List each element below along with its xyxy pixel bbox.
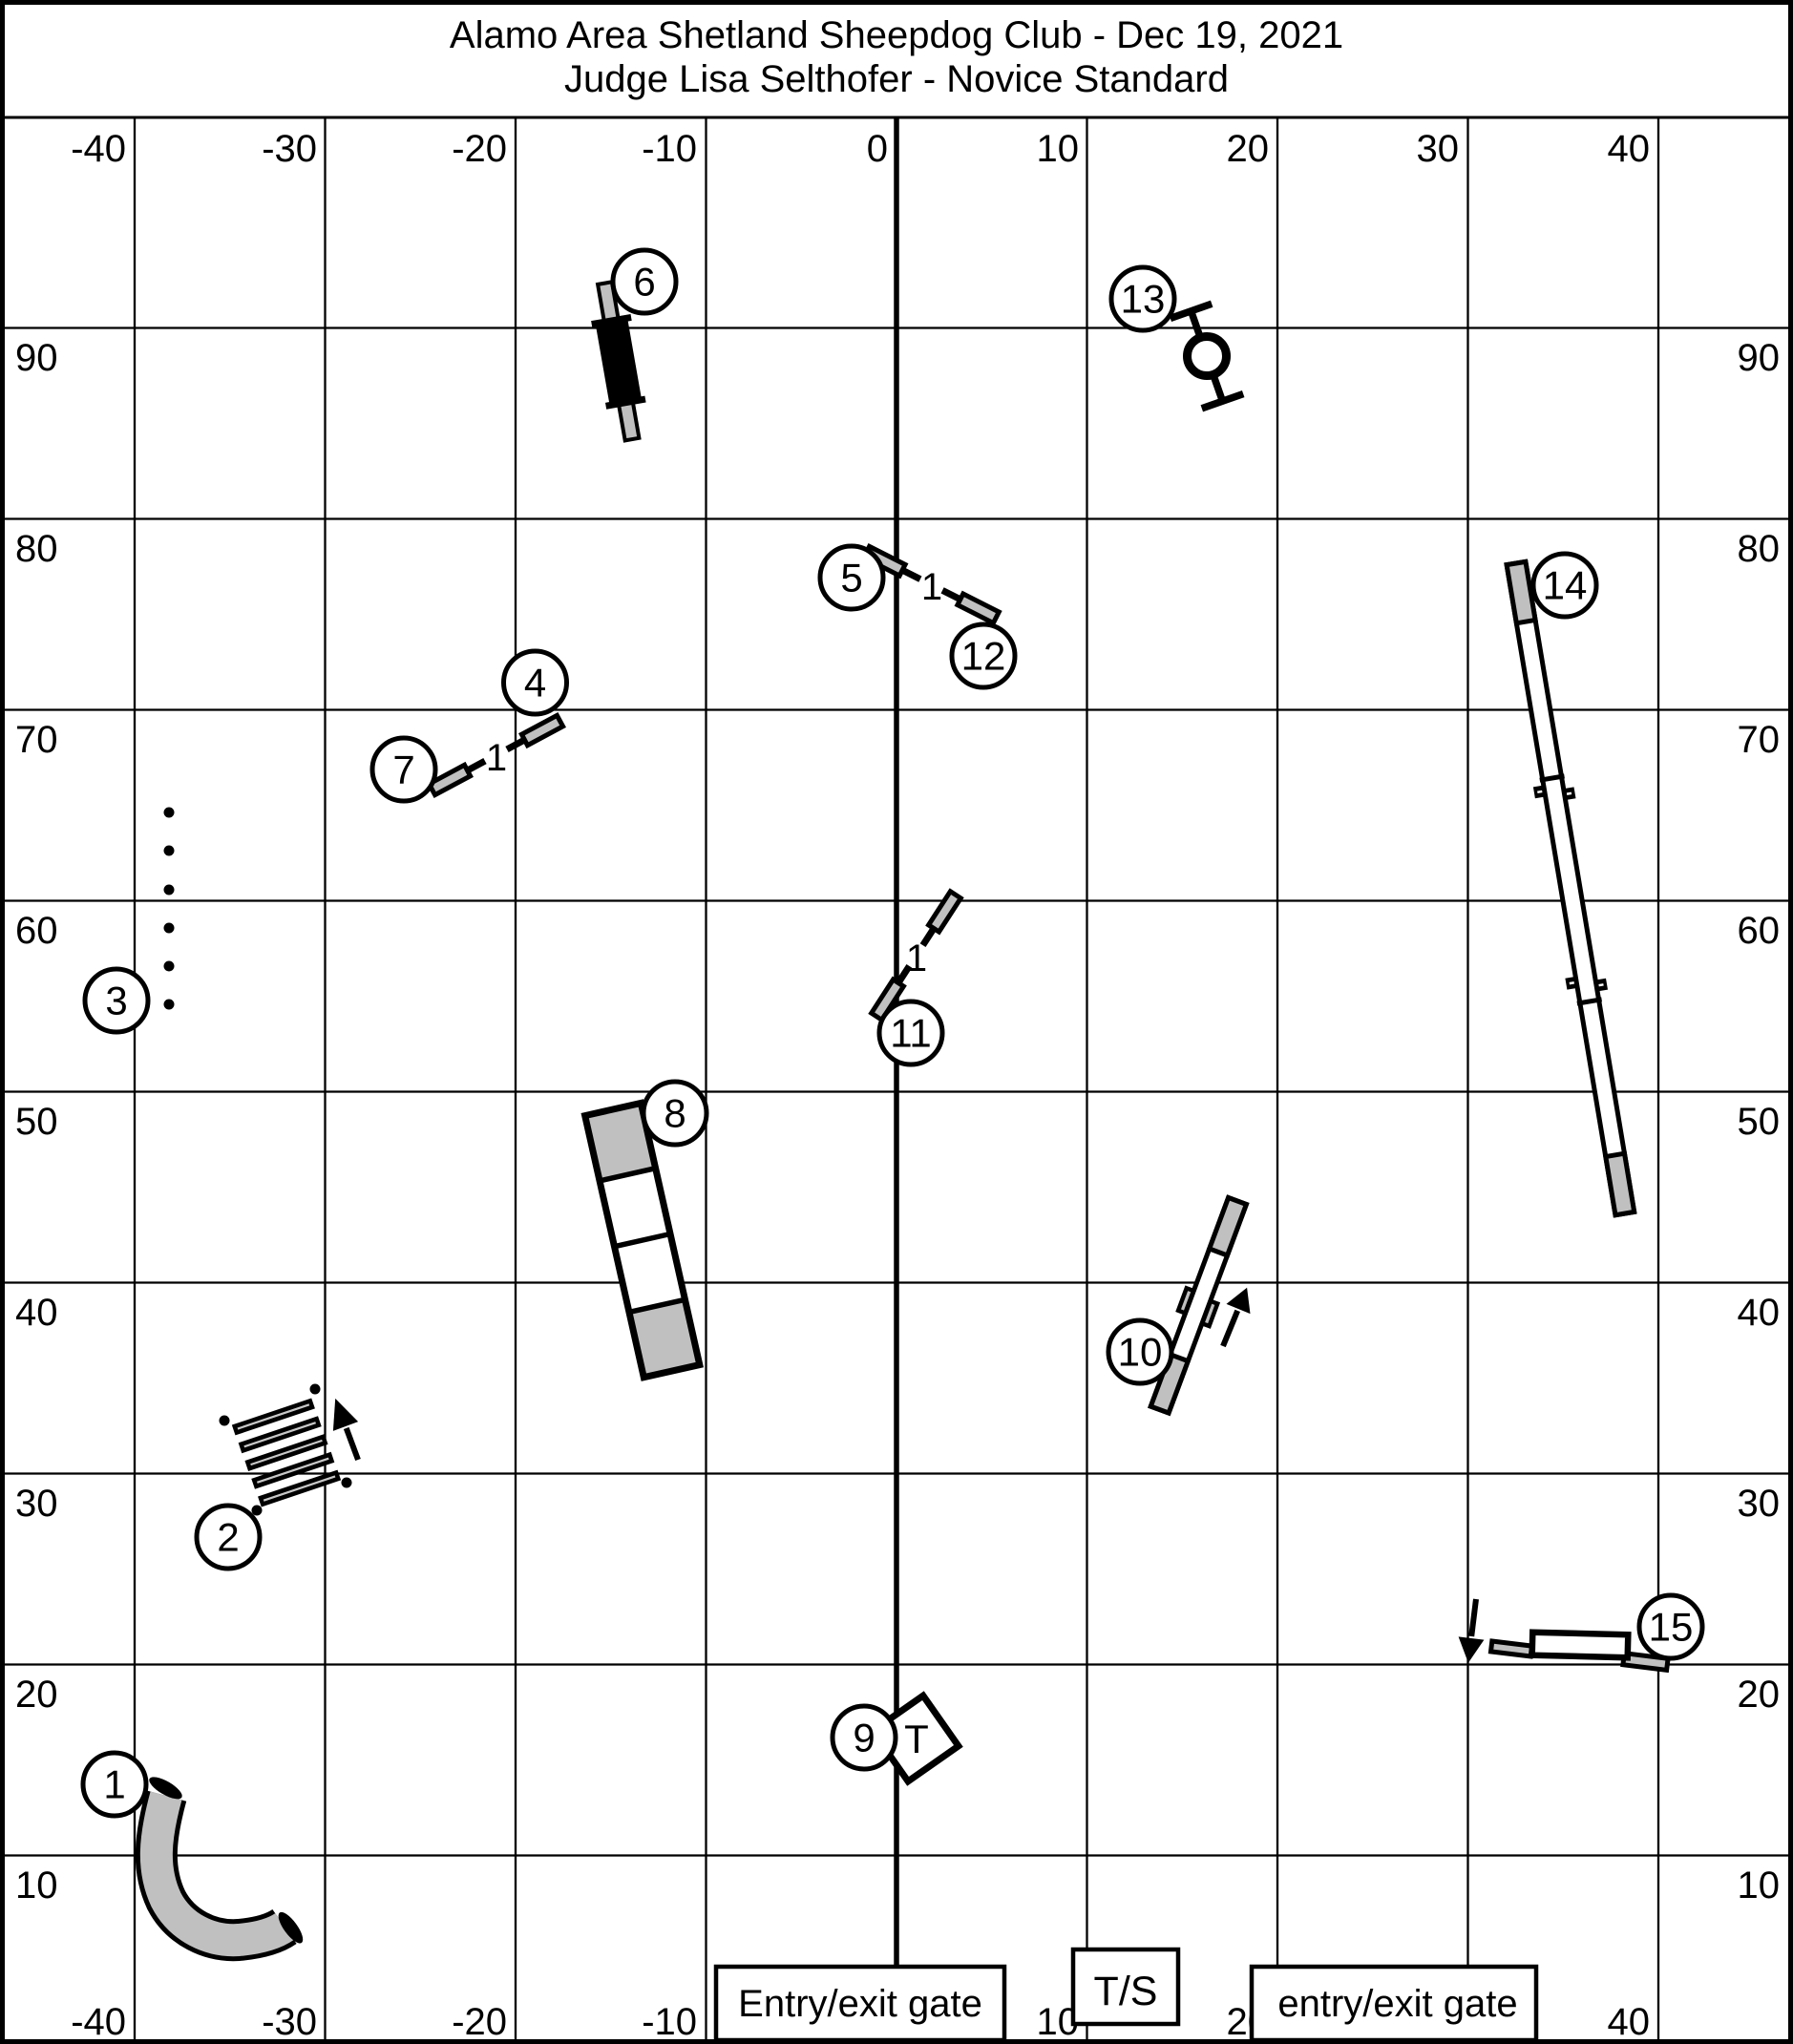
svg-text:90: 90	[15, 337, 58, 379]
svg-text:70: 70	[1738, 719, 1781, 761]
svg-text:9: 9	[853, 1716, 875, 1760]
svg-text:7: 7	[392, 748, 414, 792]
svg-text:T/S: T/S	[1094, 1969, 1158, 2014]
svg-text:-40: -40	[71, 2001, 126, 2043]
svg-text:40: 40	[15, 1292, 58, 1334]
svg-text:entry/exit gate: entry/exit gate	[1277, 1983, 1517, 2025]
svg-text:30: 30	[1417, 128, 1460, 170]
svg-text:40: 40	[1608, 128, 1651, 170]
svg-text:50: 50	[15, 1101, 58, 1143]
svg-text:15: 15	[1649, 1605, 1694, 1650]
svg-text:0: 0	[867, 128, 888, 170]
svg-text:5: 5	[840, 556, 862, 601]
svg-text:10: 10	[1037, 128, 1080, 170]
svg-text:80: 80	[1738, 528, 1781, 570]
svg-text:-30: -30	[262, 2001, 317, 2043]
svg-text:80: 80	[15, 528, 58, 570]
svg-text:1: 1	[906, 938, 927, 980]
svg-text:Alamo Area Shetland Sheepdog C: Alamo Area Shetland Sheepdog Club - Dec …	[450, 14, 1343, 56]
svg-text:10: 10	[1118, 1330, 1163, 1375]
svg-text:1: 1	[103, 1762, 125, 1807]
svg-text:Entry/exit gate: Entry/exit gate	[738, 1983, 982, 2025]
svg-text:10: 10	[15, 1865, 58, 1907]
svg-text:30: 30	[15, 1483, 58, 1525]
svg-text:60: 60	[1738, 910, 1781, 952]
svg-text:-10: -10	[642, 2001, 697, 2043]
svg-text:40: 40	[1608, 2001, 1651, 2043]
svg-text:40: 40	[1738, 1292, 1781, 1334]
svg-text:60: 60	[15, 910, 58, 952]
svg-text:10: 10	[1738, 1865, 1781, 1907]
svg-text:20: 20	[1738, 1674, 1781, 1716]
svg-text:12: 12	[961, 634, 1006, 679]
svg-text:90: 90	[1738, 337, 1781, 379]
svg-text:4: 4	[524, 661, 546, 706]
svg-text:30: 30	[1738, 1483, 1781, 1525]
svg-text:2: 2	[217, 1515, 239, 1560]
svg-text:14: 14	[1543, 563, 1588, 608]
svg-text:Judge Lisa Selthofer - Novice: Judge Lisa Selthofer - Novice Standard	[564, 58, 1229, 100]
svg-text:13: 13	[1121, 277, 1166, 322]
svg-text:T: T	[904, 1717, 929, 1761]
svg-text:3: 3	[105, 979, 127, 1023]
svg-text:20: 20	[15, 1674, 58, 1716]
svg-text:-20: -20	[452, 128, 507, 170]
svg-text:8: 8	[664, 1091, 686, 1136]
svg-text:1: 1	[921, 566, 942, 608]
svg-text:70: 70	[15, 719, 58, 761]
svg-text:6: 6	[633, 260, 655, 305]
svg-text:50: 50	[1738, 1101, 1781, 1143]
svg-text:1: 1	[486, 737, 507, 779]
svg-text:20: 20	[1227, 128, 1270, 170]
svg-text:-30: -30	[262, 128, 317, 170]
svg-text:-20: -20	[452, 2001, 507, 2043]
svg-text:-40: -40	[71, 128, 126, 170]
svg-text:11: 11	[890, 1011, 932, 1056]
svg-text:-10: -10	[642, 128, 697, 170]
